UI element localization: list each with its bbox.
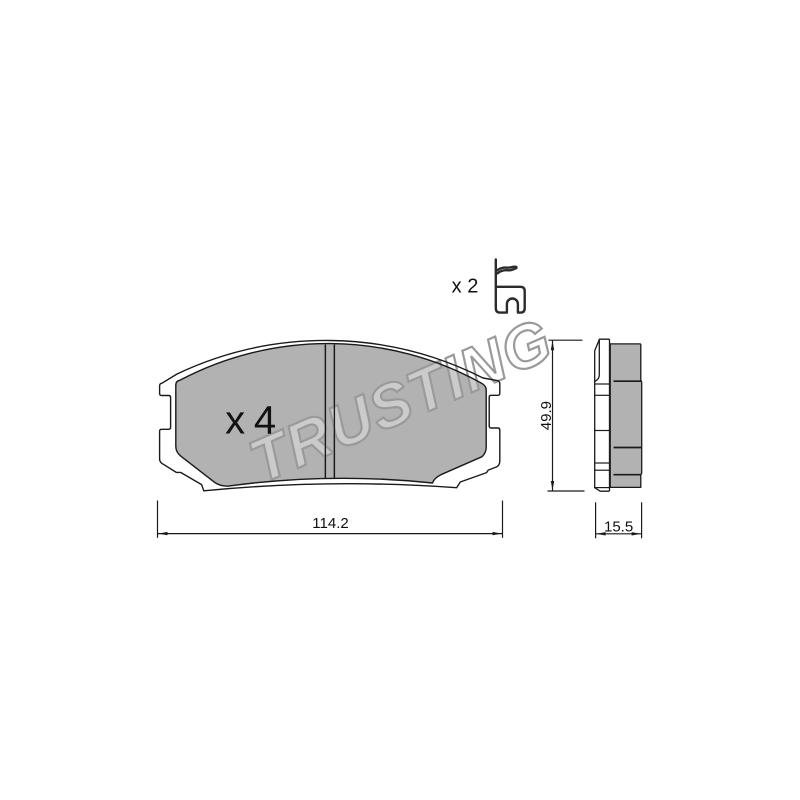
svg-text:49.9: 49.9 xyxy=(538,401,555,430)
svg-text:x 4: x 4 xyxy=(225,399,276,443)
svg-text:114.2: 114.2 xyxy=(312,515,348,532)
svg-text:x 2: x 2 xyxy=(452,275,479,297)
svg-text:15.5: 15.5 xyxy=(604,519,633,536)
